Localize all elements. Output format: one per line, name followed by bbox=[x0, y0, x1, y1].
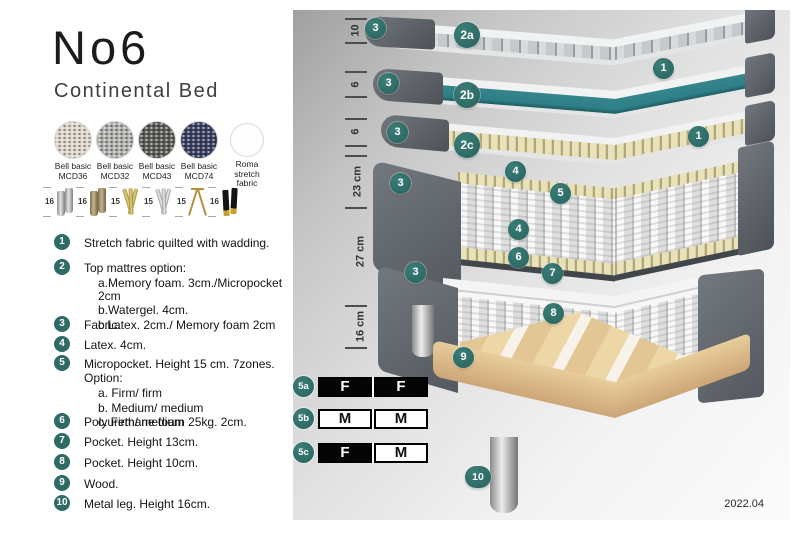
version-label: 2022.04 bbox=[724, 498, 764, 510]
callout-3-topper-b: 3 bbox=[378, 73, 399, 94]
fabric-swatch-roma[interactable]: Roma stretch fabric bbox=[227, 121, 267, 189]
fabric-swatch-circle[interactable] bbox=[96, 121, 134, 159]
metal-leg-front bbox=[490, 437, 518, 513]
callout-2a: 2a bbox=[454, 22, 480, 48]
leg-height: 16 bbox=[45, 197, 54, 206]
gold-twist-leg-icon bbox=[122, 188, 142, 216]
callout-1-a: 1 bbox=[653, 58, 674, 79]
callout-3-mattress: 3 bbox=[390, 173, 411, 194]
callout-5: 5 bbox=[550, 183, 571, 204]
firmness-cell: M bbox=[374, 443, 428, 463]
callout-8: 8 bbox=[543, 303, 564, 324]
legend-item-8: 8 Pocket. Height 10cm. bbox=[54, 454, 292, 470]
hairpin-leg-icon bbox=[188, 188, 208, 216]
product-subtitle: Continental Bed bbox=[54, 80, 219, 103]
legend-number: 5 bbox=[54, 355, 70, 371]
fabric-swatch-label: Bell basic MCD43 bbox=[137, 162, 177, 181]
leg-option-steel-cylinder[interactable]: 16 bbox=[44, 186, 77, 218]
layer-2b-right-cap bbox=[745, 52, 775, 98]
legend-text: Stretch fabric quilted with wadding. bbox=[84, 234, 269, 250]
legend-number: 10 bbox=[54, 495, 70, 511]
callout-7: 7 bbox=[542, 263, 563, 284]
callout-1-b: 1 bbox=[688, 126, 709, 147]
fabric-swatch-mcd36[interactable]: Bell basic MCD36 bbox=[53, 121, 93, 189]
leg-option-gold-twist[interactable]: 15 bbox=[110, 186, 143, 218]
callout-9: 9 bbox=[453, 347, 474, 368]
fabric-swatch-mcd74[interactable]: Bell basic MCD74 bbox=[179, 121, 219, 189]
leg-height: 15 bbox=[144, 197, 153, 206]
firmness-cell: M bbox=[374, 409, 428, 429]
firmness-bar: F M bbox=[318, 443, 428, 463]
legend-text: Pocket. Height 13cm. bbox=[84, 433, 198, 449]
exploded-diagram: 10 6 6 23 cm 27 cm 16 cm bbox=[293, 10, 790, 520]
callout-2b: 2b bbox=[454, 82, 480, 108]
firmness-row-5c: 5c F M bbox=[293, 442, 428, 463]
page: No6 Continental Bed Bell basic MCD36 Bel… bbox=[0, 0, 800, 533]
dim-label-23cm: 23 cm bbox=[352, 153, 365, 211]
firmness-cell: M bbox=[318, 409, 372, 429]
dim-label-10cm: 10 bbox=[350, 10, 363, 60]
layer-2c-right-cap bbox=[745, 100, 775, 146]
callout-3-topper-c: 3 bbox=[387, 122, 408, 143]
legend-number: 1 bbox=[54, 234, 70, 250]
firmness-cell: F bbox=[374, 377, 428, 397]
product-title: No6 bbox=[52, 20, 150, 75]
callout-3-base: 3 bbox=[405, 262, 426, 283]
firmness-row-5a: 5a F F bbox=[293, 376, 428, 397]
legend-item-6: 6 Polyurethane foam 25kg. 2cm. bbox=[54, 413, 292, 429]
legend-number: 7 bbox=[54, 433, 70, 449]
fabric-swatches: Bell basic MCD36 Bell basic MCD32 Bell b… bbox=[53, 121, 267, 189]
legend-number: 4 bbox=[54, 336, 70, 352]
legend-number: 9 bbox=[54, 475, 70, 491]
fabric-swatch-circle[interactable] bbox=[230, 123, 264, 157]
legend-text: Metal leg. Height 16cm. bbox=[84, 495, 210, 511]
steel-cylinder-leg-icon bbox=[56, 188, 76, 216]
legend-text: Wood. bbox=[84, 475, 118, 491]
legend-text: Polyurethane foam 25kg. 2cm. bbox=[84, 413, 247, 429]
firmness-bar: M M bbox=[318, 409, 428, 429]
firmness-cell: F bbox=[318, 377, 372, 397]
legend-number: 6 bbox=[54, 413, 70, 429]
legend-item-10: 10 Metal leg. Height 16cm. bbox=[54, 495, 292, 511]
leg-height: 15 bbox=[177, 197, 186, 206]
metal-leg-back bbox=[412, 305, 434, 357]
firmness-bar: F F bbox=[318, 377, 428, 397]
firmness-cell: F bbox=[318, 443, 372, 463]
mattress-front-face bbox=[458, 172, 615, 287]
firmness-id: 5a bbox=[293, 376, 314, 397]
leg-option-hairpin[interactable]: 15 bbox=[176, 186, 209, 218]
fabric-swatch-circle[interactable] bbox=[138, 121, 176, 159]
legend-item-3: 3 Fabric. bbox=[54, 316, 292, 332]
layer-2a-right-cap bbox=[745, 10, 775, 44]
layer-2b-side-face bbox=[615, 62, 763, 118]
legend-item-1: 1 Stretch fabric quilted with wadding. bbox=[54, 234, 292, 250]
fabric-swatch-circle[interactable] bbox=[54, 121, 92, 159]
layer-2a-side-face bbox=[615, 10, 763, 65]
legend-item-9: 9 Wood. bbox=[54, 475, 292, 491]
fabric-swatch-label: Bell basic MCD36 bbox=[53, 162, 93, 181]
leg-options: 16 16 15 15 15 16 bbox=[44, 186, 242, 218]
firmness-id: 5b bbox=[293, 408, 314, 429]
callout-10: 10 bbox=[465, 466, 491, 488]
fabric-swatch-mcd32[interactable]: Bell basic MCD32 bbox=[95, 121, 135, 189]
callout-3-topper-a: 3 bbox=[365, 18, 386, 39]
firmness-row-5b: 5b M M bbox=[293, 408, 428, 429]
info-panel: No6 Continental Bed Bell basic MCD36 Bel… bbox=[0, 0, 293, 533]
dim-label-16cm: 16 cm bbox=[355, 298, 368, 356]
legend-number: 3 bbox=[54, 316, 70, 332]
fabric-swatch-label: Bell basic MCD74 bbox=[179, 162, 219, 181]
fabric-swatch-label: Bell basic MCD32 bbox=[95, 162, 135, 181]
leg-height: 15 bbox=[111, 197, 120, 206]
leg-option-brass-cylinder[interactable]: 16 bbox=[77, 186, 110, 218]
fabric-swatch-label: Roma stretch fabric bbox=[227, 160, 267, 189]
fabric-swatch-circle[interactable] bbox=[180, 121, 218, 159]
legend-text: Latex. 4cm. bbox=[84, 336, 146, 352]
silver-twist-leg-icon bbox=[155, 188, 175, 216]
leg-height: 16 bbox=[210, 197, 219, 206]
brass-cylinder-leg-icon bbox=[89, 188, 109, 216]
legend-number: 2 bbox=[54, 259, 70, 275]
dim-label-27cm: 27 cm bbox=[355, 223, 368, 281]
callout-4-top: 4 bbox=[505, 161, 526, 182]
firmness-id: 5c bbox=[293, 442, 314, 463]
mattress-right-cap bbox=[738, 140, 774, 256]
legend-subitem: a. Firm/ firm bbox=[98, 387, 292, 400]
callout-4-bottom: 4 bbox=[508, 219, 529, 240]
legend-item-7: 7 Pocket. Height 13cm. bbox=[54, 433, 292, 449]
fabric-swatch-mcd43[interactable]: Bell basic MCD43 bbox=[137, 121, 177, 189]
leg-option-silver-twist[interactable]: 15 bbox=[143, 186, 176, 218]
legend-subitem: a.Memory foam. 3cm./Micropocket 2cm bbox=[98, 277, 292, 302]
callout-6: 6 bbox=[508, 247, 529, 268]
legend-number: 8 bbox=[54, 454, 70, 470]
legend-item-4: 4 Latex. 4cm. bbox=[54, 336, 292, 352]
callout-2c: 2c bbox=[454, 132, 480, 158]
black-gold-leg-icon bbox=[221, 188, 241, 216]
legend-text: Fabric. bbox=[84, 316, 121, 332]
legend-text: Pocket. Height 10cm. bbox=[84, 454, 198, 470]
leg-height: 16 bbox=[78, 197, 87, 206]
leg-option-black-gold[interactable]: 16 bbox=[209, 186, 242, 218]
